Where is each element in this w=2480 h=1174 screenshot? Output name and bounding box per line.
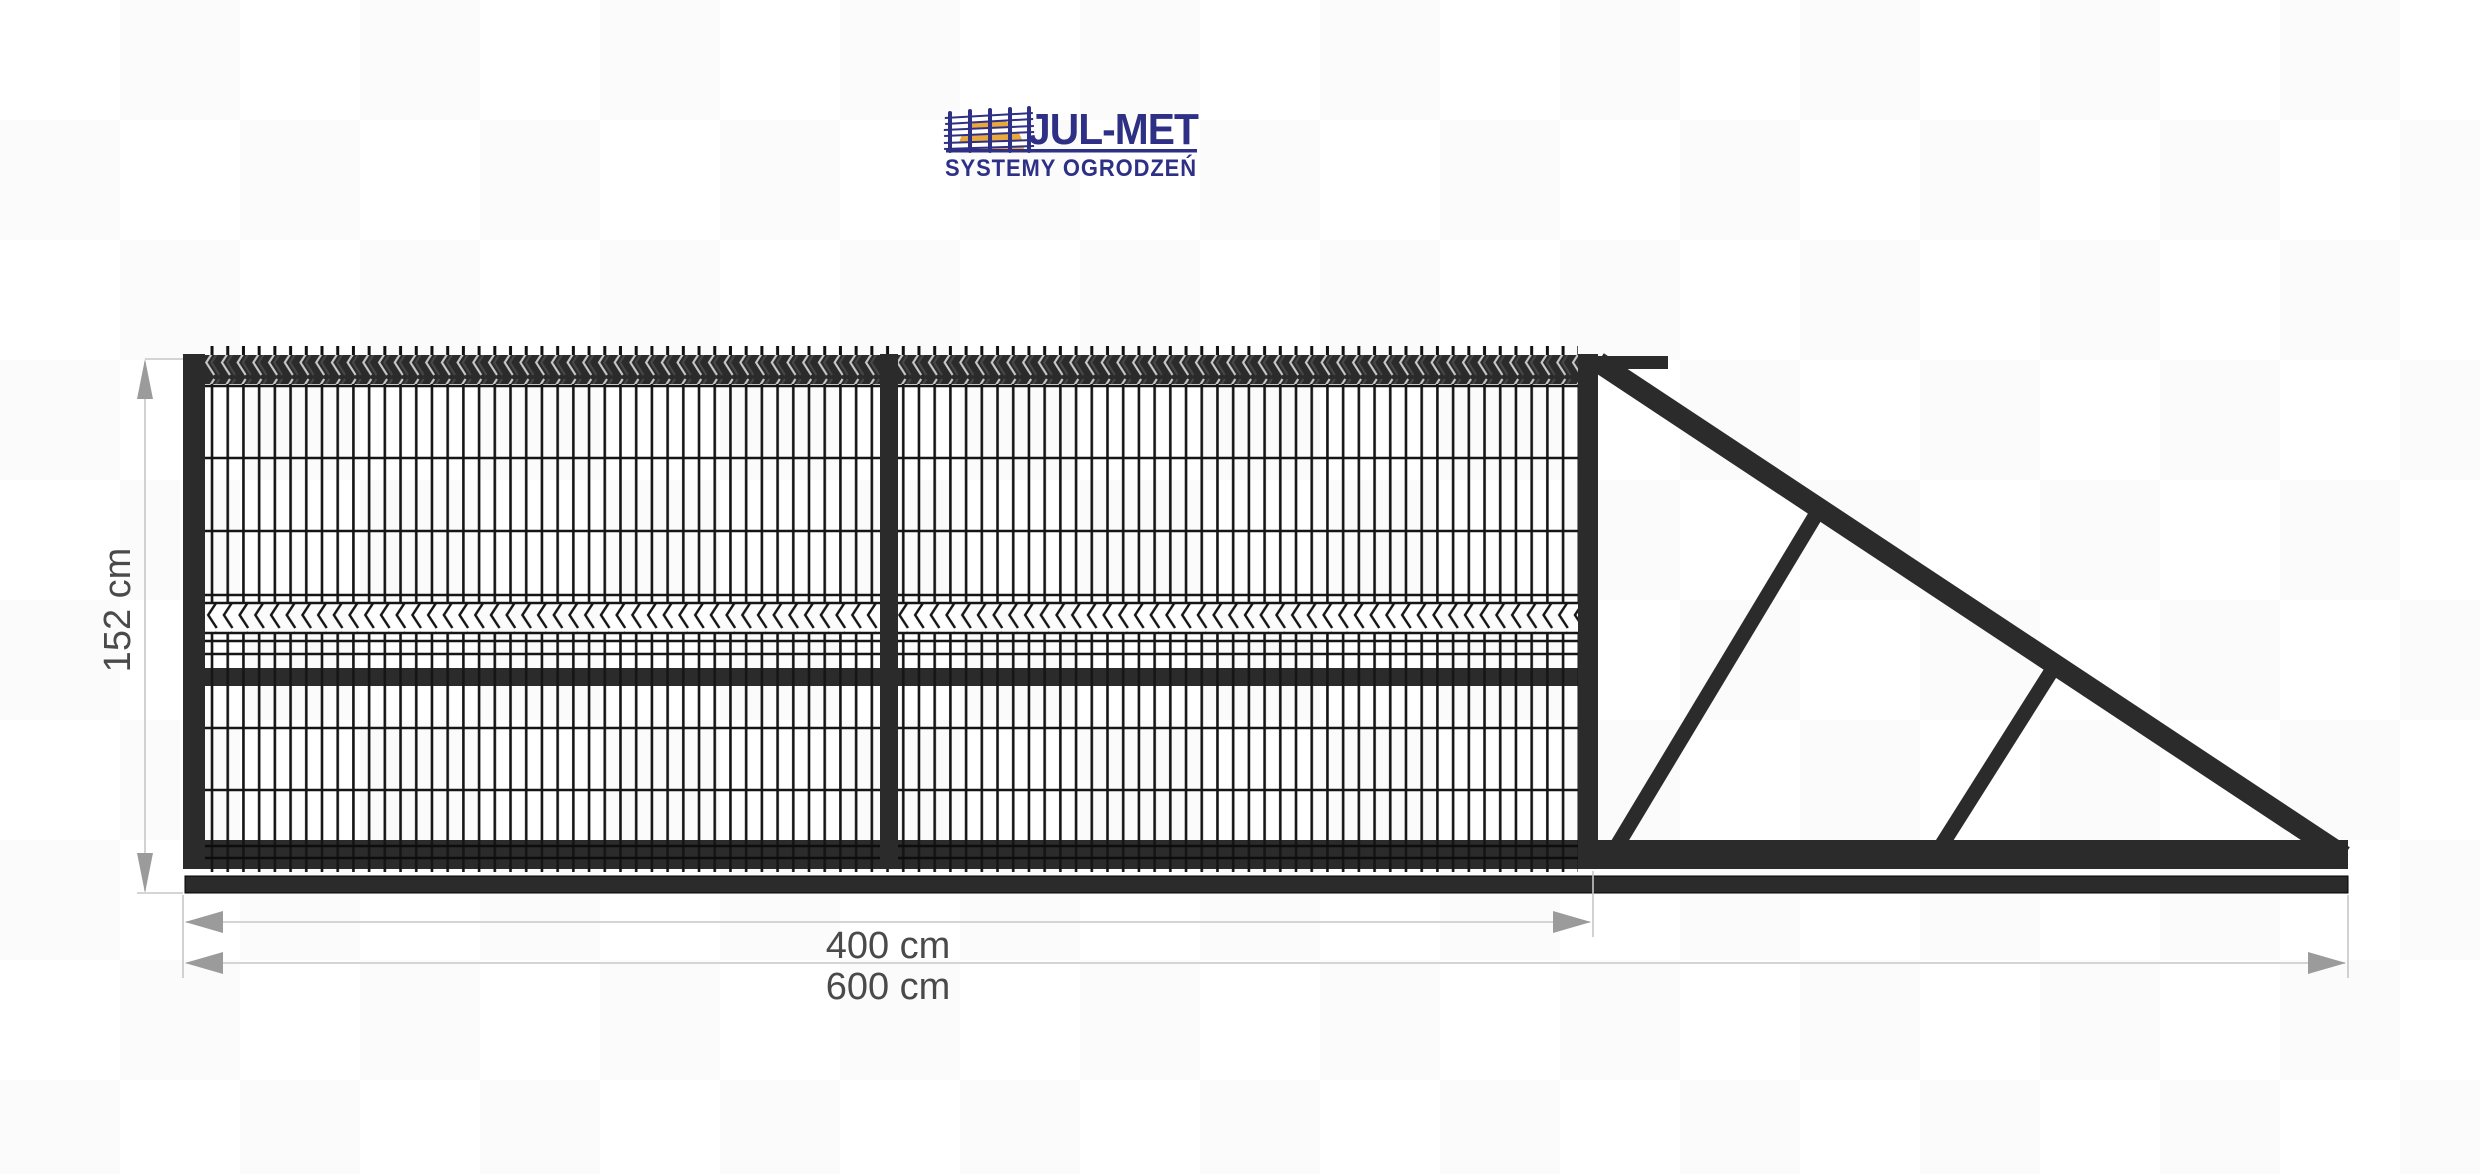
right-post [1578,354,1598,869]
logo: JUL-MET SYSTEMY OGRODZEŃ [944,105,1199,182]
truss-brace-1 [1612,508,1820,854]
logo-fence-icon [944,108,1034,151]
product-diagram-canvas: 152 cm 400 cm 600 cm [0,0,2480,1174]
arrow-right-icon [1553,911,1591,933]
gate-drawing [183,346,2348,893]
dim-total-width-label: 600 cm [826,966,951,1008]
arrow-up-icon [137,359,153,399]
dim-height-label: 152 cm [97,548,139,673]
left-post [183,354,205,869]
logo-title: JUL-MET [1028,105,1199,154]
truss-brace-2 [1936,664,2056,854]
ground-track [185,876,2348,893]
counterweight-truss [1594,356,2344,856]
arrow-down-icon [137,853,153,893]
middle-post [880,354,898,869]
logo-subtitle: SYSTEMY OGRODZEŃ [945,154,1197,182]
arrow-left-icon [185,911,223,933]
dim-gate-width-label: 400 cm [826,925,951,967]
arrow-left-icon [185,952,223,974]
mesh-top-wire-tips [205,346,1578,355]
truss-main-diagonal [1598,362,2344,856]
arrow-right-icon [2308,952,2346,974]
sliding-gate-technical-drawing: 152 cm 400 cm 600 cm [0,0,2480,1174]
